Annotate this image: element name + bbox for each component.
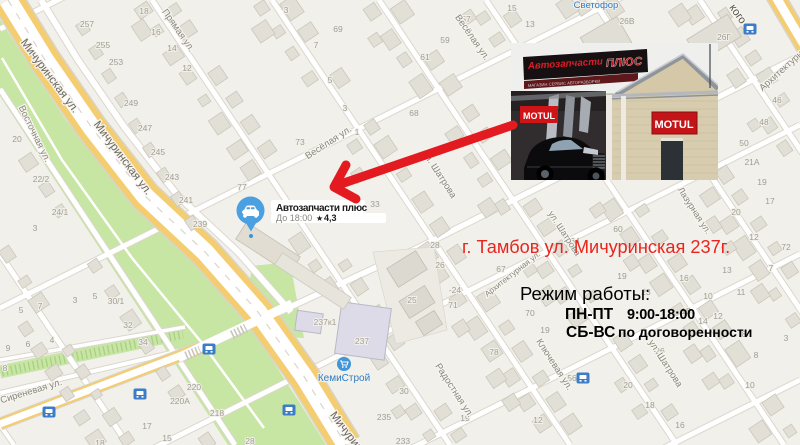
svg-text:17: 17: [765, 196, 775, 206]
svg-text:Светофор: Светофор: [574, 0, 619, 11]
svg-text:241: 241: [179, 195, 193, 205]
svg-text:20: 20: [623, 380, 633, 390]
svg-text:9:00-18:00: 9:00-18:00: [627, 307, 695, 323]
svg-text:★: ★: [316, 214, 323, 223]
svg-text:3: 3: [33, 223, 38, 233]
svg-text:70: 70: [525, 308, 535, 318]
svg-text:12: 12: [749, 232, 759, 242]
svg-text:6: 6: [26, 339, 31, 349]
svg-text:237: 237: [355, 336, 369, 346]
svg-text:До 18:00: До 18:00: [276, 213, 312, 223]
svg-text:13: 13: [525, 19, 535, 29]
svg-text:71: 71: [448, 300, 458, 310]
svg-text:255: 255: [96, 40, 110, 50]
svg-text:8: 8: [3, 363, 8, 373]
svg-text:12: 12: [533, 415, 543, 425]
svg-text:245: 245: [151, 147, 165, 157]
svg-text:15: 15: [507, 3, 517, 13]
svg-text:253: 253: [109, 57, 123, 67]
svg-text:21А: 21А: [744, 157, 759, 167]
svg-text:1: 1: [355, 127, 360, 137]
svg-text:249: 249: [124, 98, 138, 108]
svg-text:220: 220: [187, 382, 201, 392]
svg-text:7: 7: [769, 263, 774, 273]
svg-text:243: 243: [165, 172, 179, 182]
svg-text:Режим работы:: Режим работы:: [520, 283, 650, 304]
svg-text:26: 26: [435, 260, 445, 270]
svg-text:32: 32: [123, 320, 133, 330]
svg-text:12: 12: [182, 63, 192, 73]
svg-text:59: 59: [440, 35, 450, 45]
svg-text:4: 4: [50, 335, 55, 345]
svg-text:28: 28: [245, 436, 255, 445]
svg-text:18: 18: [645, 400, 655, 410]
svg-text:68: 68: [409, 108, 419, 118]
svg-text:16: 16: [151, 27, 161, 37]
svg-text:-24: -24: [449, 285, 462, 295]
svg-text:239: 239: [193, 219, 207, 229]
svg-text:7: 7: [38, 301, 43, 311]
svg-text:48: 48: [759, 117, 769, 127]
svg-text:19: 19: [540, 325, 550, 335]
svg-text:30/1: 30/1: [108, 296, 125, 306]
svg-text:17: 17: [142, 421, 152, 431]
svg-text:г. Тамбов ул. Мичуринская 237г: г. Тамбов ул. Мичуринская 237г.: [462, 237, 730, 257]
svg-text:14: 14: [167, 43, 177, 53]
svg-text:20: 20: [12, 134, 22, 144]
svg-text:19: 19: [617, 271, 627, 281]
svg-text:10: 10: [703, 291, 713, 301]
svg-text:19: 19: [757, 177, 767, 187]
svg-text:61: 61: [420, 52, 430, 62]
svg-text:220А: 220А: [170, 396, 190, 406]
svg-text:247: 247: [138, 123, 152, 133]
svg-text:15: 15: [162, 433, 172, 443]
svg-text:8: 8: [754, 350, 759, 360]
svg-text:50: 50: [739, 138, 749, 148]
svg-text:33: 33: [370, 199, 380, 209]
svg-text:78: 78: [489, 347, 499, 357]
svg-text:67: 67: [496, 264, 506, 274]
svg-text:73: 73: [295, 137, 305, 147]
svg-text:MOTUL: MOTUL: [654, 119, 693, 131]
svg-text:77: 77: [237, 182, 247, 192]
svg-text:18: 18: [139, 6, 149, 16]
svg-text:16: 16: [679, 273, 689, 283]
svg-text:КемиСтрой: КемиСтрой: [318, 373, 370, 384]
svg-text:26В: 26В: [619, 16, 634, 26]
svg-text:СБ-ВС: СБ-ВС: [566, 324, 615, 341]
svg-text:MOTUL: MOTUL: [523, 111, 555, 121]
svg-text:30: 30: [399, 386, 409, 396]
svg-text:5: 5: [328, 75, 333, 85]
svg-text:72: 72: [781, 242, 791, 252]
svg-text:69: 69: [333, 24, 343, 34]
svg-text:237к1: 237к1: [314, 317, 337, 327]
svg-text:12: 12: [713, 311, 723, 321]
svg-text:4,3: 4,3: [324, 213, 337, 223]
svg-text:5: 5: [93, 291, 98, 301]
svg-text:5: 5: [19, 305, 24, 315]
svg-text:20: 20: [731, 207, 741, 217]
svg-text:13: 13: [722, 265, 732, 275]
svg-text:46: 46: [772, 95, 782, 105]
svg-text:16: 16: [675, 420, 685, 430]
svg-text:25: 25: [407, 295, 417, 305]
svg-text:3: 3: [784, 333, 789, 343]
svg-text:257: 257: [80, 19, 94, 29]
svg-text:34: 34: [138, 337, 148, 347]
svg-text:18: 18: [95, 438, 105, 445]
svg-text:218: 218: [210, 408, 224, 418]
svg-text:10: 10: [745, 380, 755, 390]
svg-text:3: 3: [343, 103, 348, 113]
svg-text:ПН-ПТ: ПН-ПТ: [565, 306, 614, 323]
svg-text:235: 235: [377, 412, 391, 422]
svg-text:3: 3: [284, 5, 289, 15]
svg-text:ПЛЮС: ПЛЮС: [605, 56, 643, 70]
svg-text:9: 9: [6, 343, 11, 353]
svg-text:3: 3: [73, 295, 78, 305]
svg-text:60: 60: [613, 224, 623, 234]
svg-text:7: 7: [314, 40, 319, 50]
svg-text:233: 233: [396, 436, 410, 445]
svg-text:24/1: 24/1: [52, 207, 69, 217]
svg-text:26Г: 26Г: [717, 32, 731, 42]
svg-text:11: 11: [737, 287, 746, 297]
svg-text:22/2: 22/2: [33, 174, 50, 184]
svg-text:по договоренности: по договоренности: [618, 324, 752, 340]
svg-text:28: 28: [430, 240, 440, 250]
